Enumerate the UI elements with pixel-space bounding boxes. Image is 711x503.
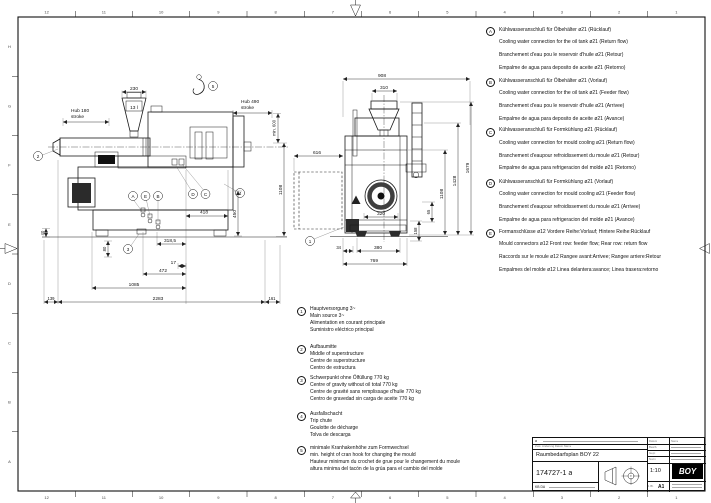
dimension-label: 450 [232,210,238,218]
grid-label-top: 9 [217,10,220,15]
scale-value: 1:10 [650,468,661,474]
callout-A: A [131,194,135,199]
grid-label-bottom: 9 [217,495,220,500]
revision-header: Zust. Änderung Datum Name [535,444,571,448]
grid-label-bottom: 5 [446,495,449,500]
grid-label-left: A [8,459,11,464]
dimension-label: 230 [130,86,138,92]
callout-balloons: 2 A E B D C 4 3 5 1 [34,82,345,254]
grid-label-bottom: 7 [332,495,335,500]
warning-triangle-icon [352,196,361,205]
grid-label-bottom: 1 [675,495,678,500]
drawing-title: Raumbedarfsplan BOY 22 [536,452,599,458]
grid-label-bottom: 8 [275,495,278,500]
dimension-label: 908 [378,73,386,79]
callout-D: D [191,192,195,197]
sheet-format: A1 [658,484,664,490]
grid-label-bottom: 12 [44,495,49,500]
centering-arrow-left [5,244,17,254]
field-bearb: Bearb. [649,445,657,449]
grid-label-top: 8 [275,10,278,15]
callout-5: 5 [212,84,215,89]
dept-code: KB DA [535,485,545,489]
grid-label-left: D [8,281,11,286]
grid-label-top: 10 [159,10,164,15]
crane-hook-icon [193,75,204,95]
grid-label-left: G [8,103,11,108]
machine-logo: BOY [101,158,112,164]
dimension-label: Hub 490 [241,99,259,105]
mains-connection-box [346,219,359,232]
grid-label-top: 6 [389,10,392,15]
dimension-label: 472 [159,268,167,274]
company-logo: BOY [672,464,703,479]
grid-label-left: F [8,163,11,168]
dimension-label: stroke [241,105,254,111]
dimension-label: 65 [426,209,431,214]
carriage [118,156,186,168]
title-block: a Zust. Änderung Datum Name Raumbedarfsp… [532,437,705,491]
sheet-count: 1 Bl. [648,484,654,488]
drawing-number: 174727-1 a [536,468,572,477]
callout-2: 2 [37,154,40,159]
grid-label-left: E [8,222,11,227]
field-norm: Norm [649,457,656,461]
dimension-label: 310 [380,85,388,91]
callout-4: 4 [239,191,242,196]
dimension-label: 418 [200,210,208,216]
field-name: Name [671,439,678,443]
dimension-label: 139 [48,296,56,301]
dimension-label: 80 [102,246,107,251]
front-view-linework [294,95,448,242]
technical-drawing: 121110987654321121110987654321HGFEDCBA [0,0,711,503]
callout-1: 1 [309,239,312,244]
grid-label-left: H [8,44,11,49]
centering-arrow-top [351,5,361,16]
dimension-label: 616 [313,150,321,156]
grid-label-top: 11 [102,10,107,15]
grid-label-top: 12 [44,10,49,15]
dimension-label: 40 [40,230,45,235]
centering-arrow-bottom [351,492,361,498]
grid-label-bottom: 4 [504,495,507,500]
dimension-label: 2283 [153,296,164,302]
drawing-sheet: 121110987654321121110987654321HGFEDCBA [0,0,711,503]
clamp-housing [148,112,233,167]
dimension-label: 161 [269,296,277,301]
dimension-label: min. 600 [272,119,277,136]
grid-label-top: 3 [561,10,564,15]
grid-label-bottom: 6 [389,495,392,500]
grid-label-top: 1 [675,10,678,15]
dimension-label: 769 [370,258,378,264]
grid-label-bottom: 2 [618,495,621,500]
front-view-dimensions: 908 310 616 1679 1428 1108 65 158 320 38… [294,73,471,264]
dimension-label: 1085 [129,282,140,288]
callout-B: B [156,194,159,199]
field-datum: Datum [649,439,657,443]
dimension-label: 1108 [278,185,284,196]
projection-symbol-icon [598,461,647,492]
end-plate [233,116,244,167]
callout-3: 3 [127,247,130,252]
grid-label-bottom: 10 [159,495,164,500]
grid-label-top: 2 [618,10,621,15]
dimension-label: 1679 [465,162,471,173]
dimension-label: stroke [71,114,84,120]
callout-C: C [204,192,208,197]
grid-label-top: 5 [446,10,449,15]
dimension-label: 1108 [439,189,445,200]
grid-label-left: C [8,340,11,345]
grid-label-left: B [8,400,11,405]
grid-label-bottom: 3 [561,495,564,500]
protection-note-smudge [549,487,595,488]
hopper-capacity-label: 13 l [130,105,138,111]
dimension-label: 320 [377,211,385,217]
grid-label-top: 4 [504,10,507,15]
revision-note-smudge [543,441,638,442]
grid-label-top: 7 [332,10,335,15]
field-gepr: Gepr. [649,451,656,455]
revision-mark: a [535,439,537,443]
dimension-label: 158 [413,227,418,235]
grid-label-bottom: 11 [102,495,107,500]
guard-window [190,127,227,158]
dimension-label: 1428 [452,175,458,186]
dimension-label: 318,5 [164,238,176,244]
hopper [122,98,146,131]
dimension-label: 34 [336,245,341,250]
dimension-label: 380 [374,245,382,251]
dimension-label: Hub 180 [71,108,89,114]
callout-E: E [144,194,147,199]
open-door-outline [294,172,342,229]
swing-arm [412,103,422,177]
dimension-label: 17 [171,260,177,266]
